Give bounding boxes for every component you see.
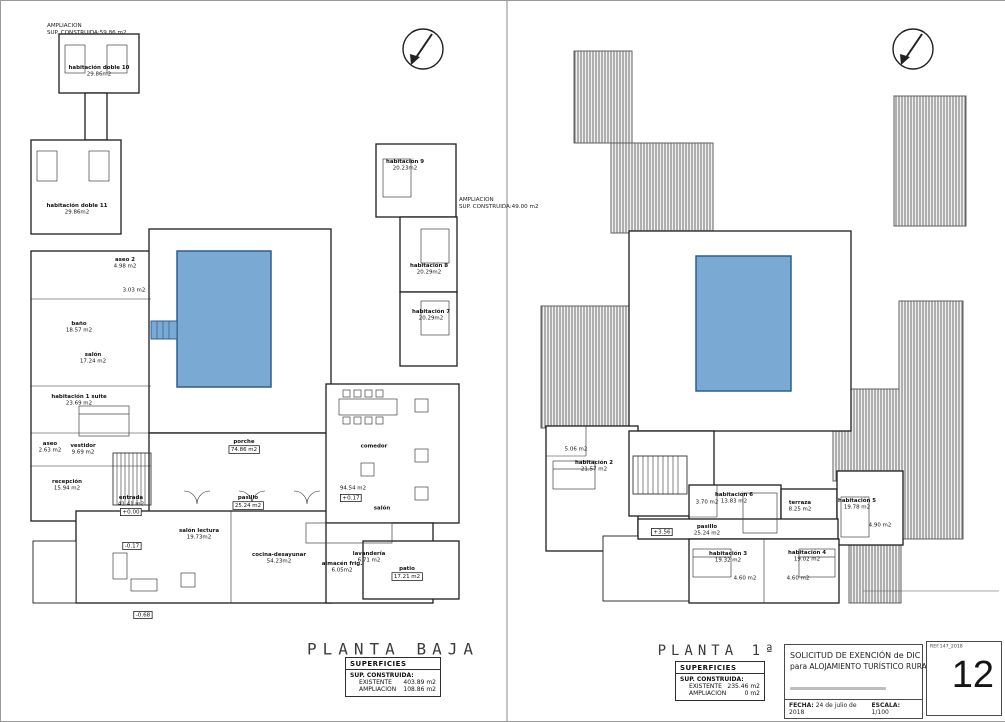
superficies-row: EXISTENTE403.89 m2 — [350, 679, 436, 686]
superficies-subheader: SUP. CONSTRUIDA: — [350, 672, 436, 679]
pool-first-floor — [696, 256, 791, 391]
north-arrow-icon — [403, 29, 443, 69]
superficies-header: SUPERFICIES — [346, 658, 440, 670]
superficies-table-baja: SUPERFICIES SUP. CONSTRUIDA: EXISTENTE40… — [345, 657, 441, 697]
superficies-subheader: SUP. CONSTRUIDA: — [680, 676, 760, 683]
north-arrow-icon — [893, 29, 933, 69]
plan-title-planta-primera: PLANTA 1ª — [658, 643, 779, 659]
project-title-line2: para ALOJAMIENTO TURÍSTICO RURAL — [790, 662, 917, 671]
superficies-row: EXISTENTE235.46 m2 — [680, 683, 760, 690]
superficies-header: SUPERFICIES — [676, 662, 764, 674]
superficies-row: AMPLIACION0 m2 — [680, 690, 760, 697]
floor-plan-linework — [1, 1, 1005, 721]
title-block: SOLICITUD DE EXENCIÓN de DIC para ALOJAM… — [784, 644, 923, 719]
fecha-field: FECHA: 24 de julio de 2018 — [789, 702, 872, 716]
superficies-row: AMPLIACION108.86 m2 — [350, 686, 436, 693]
escala-field: ESCALA: 1/100 — [872, 702, 918, 716]
project-title-line1: SOLICITUD DE EXENCIÓN de DIC — [790, 651, 917, 660]
escala-value: 1/100 — [872, 709, 889, 716]
sheet-number: 12 — [952, 654, 994, 697]
escala-label: ESCALA: — [872, 702, 900, 709]
superficies-table-primera: SUPERFICIES SUP. CONSTRUIDA: EXISTENTE23… — [675, 661, 765, 701]
redacted-author-line — [790, 687, 886, 690]
fecha-label: FECHA: — [789, 702, 814, 709]
sheet-reference: REF.147_2018 — [930, 644, 963, 649]
sheet-number-box: REF.147_2018 12 — [926, 641, 1002, 716]
plan-title-planta-baja: PLANTA BAJA — [307, 640, 479, 659]
drawing-sheet: habitación doble 1029.86m2habitación dob… — [0, 0, 1005, 722]
